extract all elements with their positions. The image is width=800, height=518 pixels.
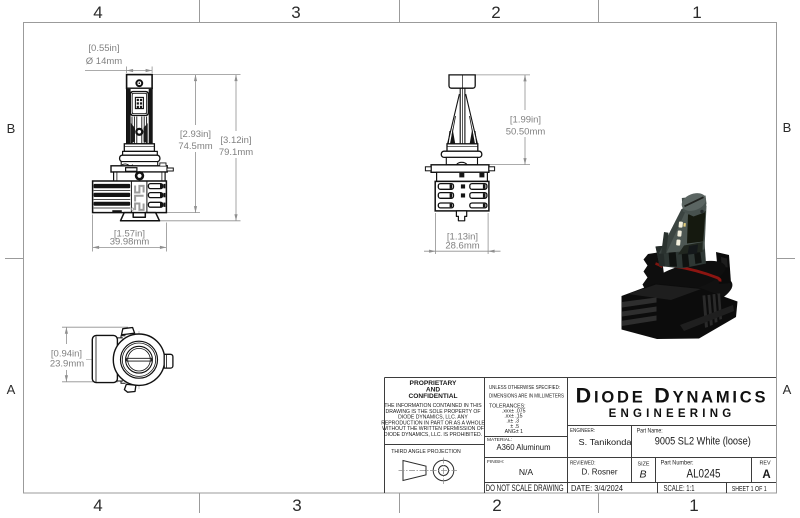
svg-text:Part Name:: Part Name: [637,428,663,435]
svg-text:DIMENSIONS ARE IN MILLIMETERS: DIMENSIONS ARE IN MILLIMETERS [489,394,564,400]
svg-text:1: 1 [689,496,698,515]
svg-text:A: A [783,382,792,397]
svg-text:ENGINEERING: ENGINEERING [609,408,736,420]
svg-text:[1.99in]: [1.99in] [510,115,541,126]
svg-text:1: 1 [692,3,701,22]
svg-text:S. Tanikonda: S. Tanikonda [579,437,632,447]
svg-text:B: B [639,469,646,481]
svg-text:DO NOT SCALE DRAWING: DO NOT SCALE DRAWING [486,483,564,493]
svg-text:74.5mm: 74.5mm [178,141,212,152]
svg-text:Ø 14mm: Ø 14mm [86,56,123,67]
svg-text:4: 4 [93,496,102,515]
svg-text:2: 2 [492,496,501,515]
svg-text:[3.12in]: [3.12in] [220,135,251,146]
svg-text:DATE: 3/4/2024: DATE: 3/4/2024 [571,484,623,493]
svg-text:2: 2 [491,3,500,22]
svg-text:3: 3 [292,496,301,515]
svg-text:A360 Aluminum: A360 Aluminum [497,442,551,452]
svg-text:N/A: N/A [519,467,534,477]
svg-text:SCALE: 1:1: SCALE: 1:1 [664,484,695,493]
svg-text:39.98mm: 39.98mm [110,237,150,248]
svg-text:DIODE DYNAMICS, LLC. IS PROHIB: DIODE DYNAMICS, LLC. IS PROHIBITED. [384,432,482,438]
svg-text:REV: REV [759,461,770,467]
svg-text:[0.55in]: [0.55in] [88,43,119,54]
svg-text:ANG± 1: ANG± 1 [505,429,524,435]
svg-text:9005 SL2 White (loose): 9005 SL2 White (loose) [655,436,751,448]
svg-text:Part Number:: Part Number: [661,460,694,467]
svg-text:FINISH:: FINISH: [487,459,504,465]
svg-text:UNLESS OTHERWISE SPECIFIED:: UNLESS OTHERWISE SPECIFIED: [489,385,560,391]
svg-text:ENGINEER:: ENGINEER: [570,428,595,434]
svg-text:B: B [783,120,792,135]
svg-text:CONFIDENTIAL: CONFIDENTIAL [408,393,457,400]
svg-text:A: A [762,469,770,481]
svg-text:THIRD ANGLE PROJECTION: THIRD ANGLE PROJECTION [391,449,461,455]
svg-text:4: 4 [93,3,102,22]
svg-text:D. Rosner: D. Rosner [582,467,618,477]
svg-text:AL0245: AL0245 [687,467,721,481]
svg-text:B: B [7,121,16,136]
svg-text:SIZE: SIZE [638,462,650,468]
svg-text:SHEET 1 OF 1: SHEET 1 OF 1 [732,484,767,493]
svg-text:[2.93in]: [2.93in] [180,129,211,140]
svg-text:A: A [7,382,16,397]
svg-text:50.50mm: 50.50mm [506,127,546,138]
svg-text:3: 3 [291,3,300,22]
svg-text:23.9mm: 23.9mm [50,359,84,370]
svg-text:28.6mm: 28.6mm [445,241,479,252]
svg-text:79.1mm: 79.1mm [219,147,253,158]
